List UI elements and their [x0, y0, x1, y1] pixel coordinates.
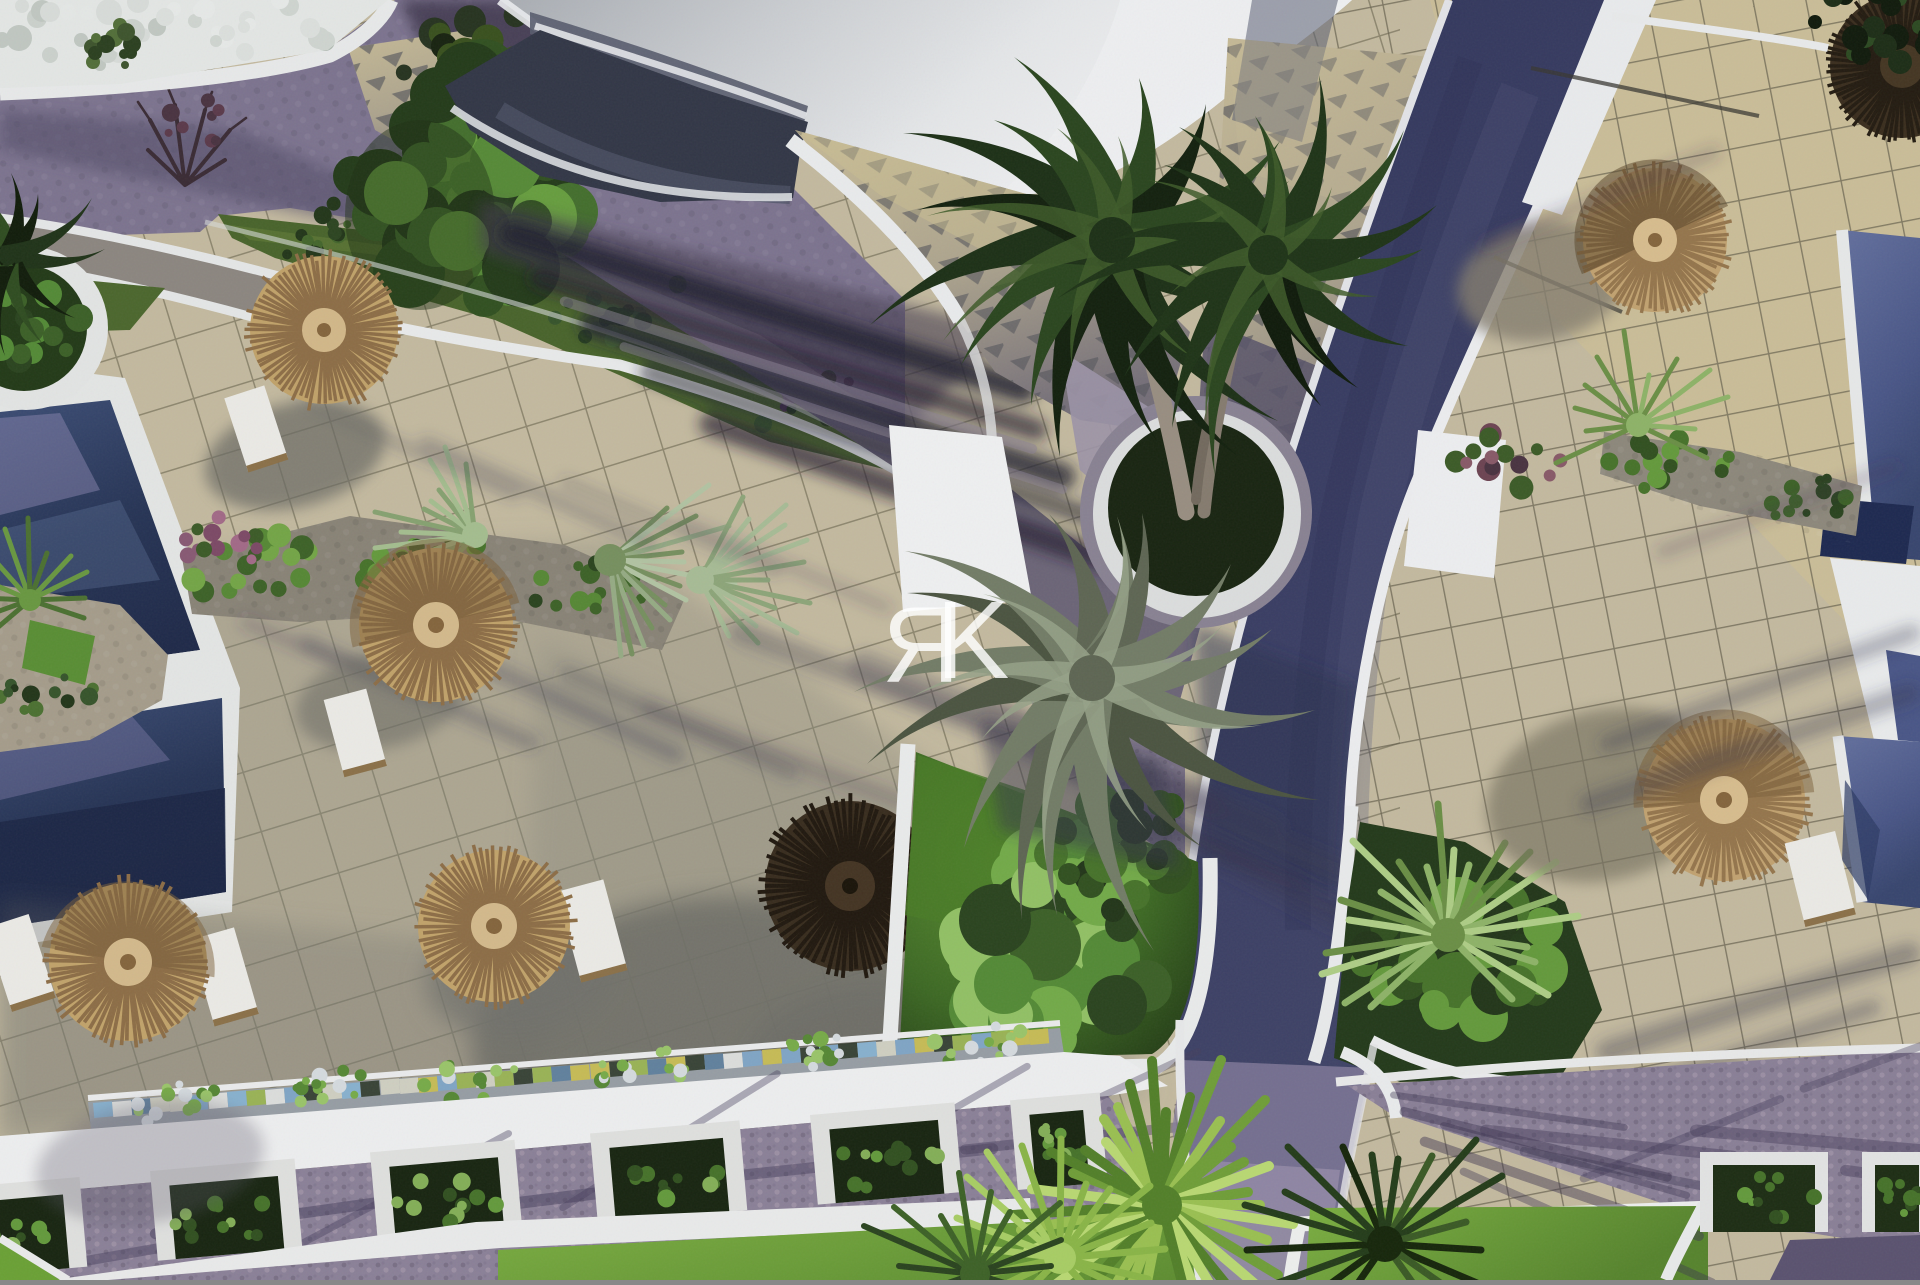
svg-text:K: K [936, 579, 1009, 702]
